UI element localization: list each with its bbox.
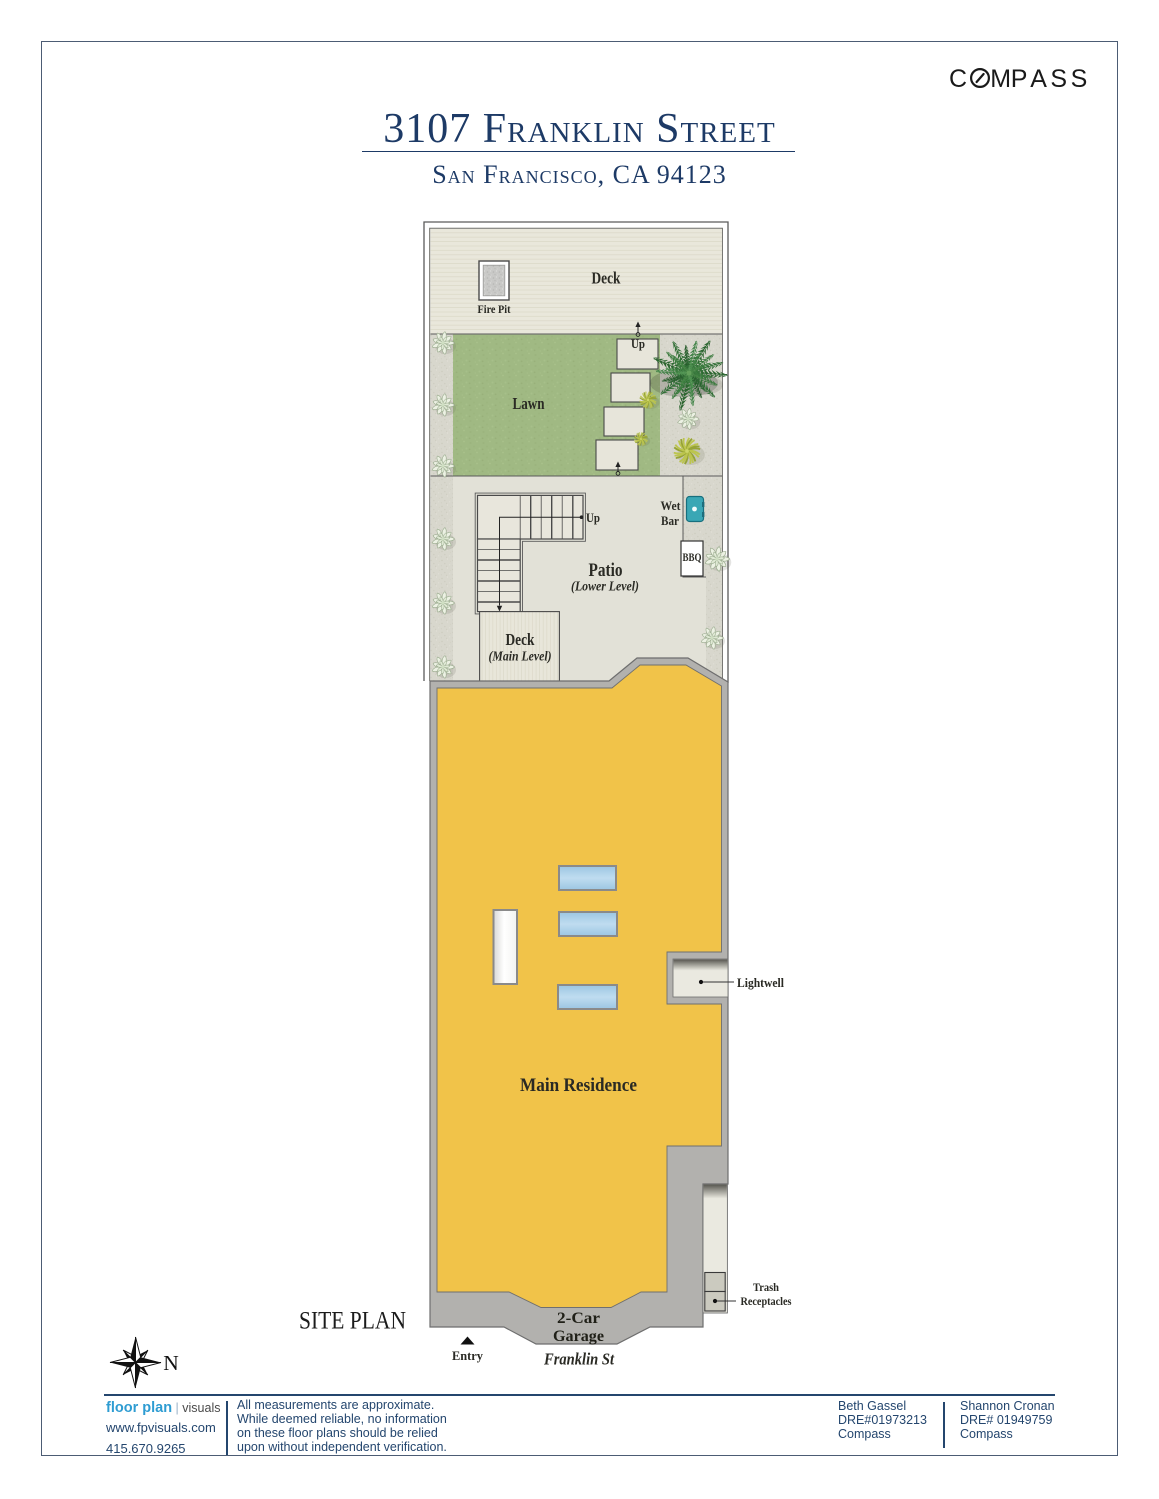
svg-text:Wet: Wet	[661, 499, 682, 513]
svg-text:Lawn: Lawn	[513, 394, 545, 413]
svg-text:Receptacles: Receptacles	[741, 1296, 792, 1308]
svg-text:Trash: Trash	[753, 1282, 780, 1294]
svg-text:Bar: Bar	[661, 514, 679, 528]
svg-text:(Lower Level): (Lower Level)	[571, 579, 639, 594]
svg-text:Deck: Deck	[592, 269, 622, 288]
svg-text:SITE PLAN: SITE PLAN	[299, 1306, 406, 1335]
svg-text:Garage: Garage	[553, 1328, 604, 1345]
svg-text:Main Residence: Main Residence	[520, 1075, 637, 1096]
svg-text:Franklin St: Franklin St	[543, 1350, 614, 1369]
svg-text:2-Car: 2-Car	[557, 1310, 600, 1327]
svg-text:Lightwell: Lightwell	[737, 976, 784, 990]
svg-text:BBQ: BBQ	[683, 552, 702, 564]
svg-text:Entry: Entry	[452, 1348, 483, 1363]
svg-text:Deck: Deck	[506, 630, 536, 649]
svg-text:Up: Up	[631, 337, 645, 351]
svg-text:Up: Up	[586, 511, 600, 525]
svg-text:(Main Level): (Main Level)	[489, 649, 552, 664]
svg-text:N: N	[163, 1351, 179, 1375]
svg-text:Fire Pit: Fire Pit	[478, 304, 511, 316]
